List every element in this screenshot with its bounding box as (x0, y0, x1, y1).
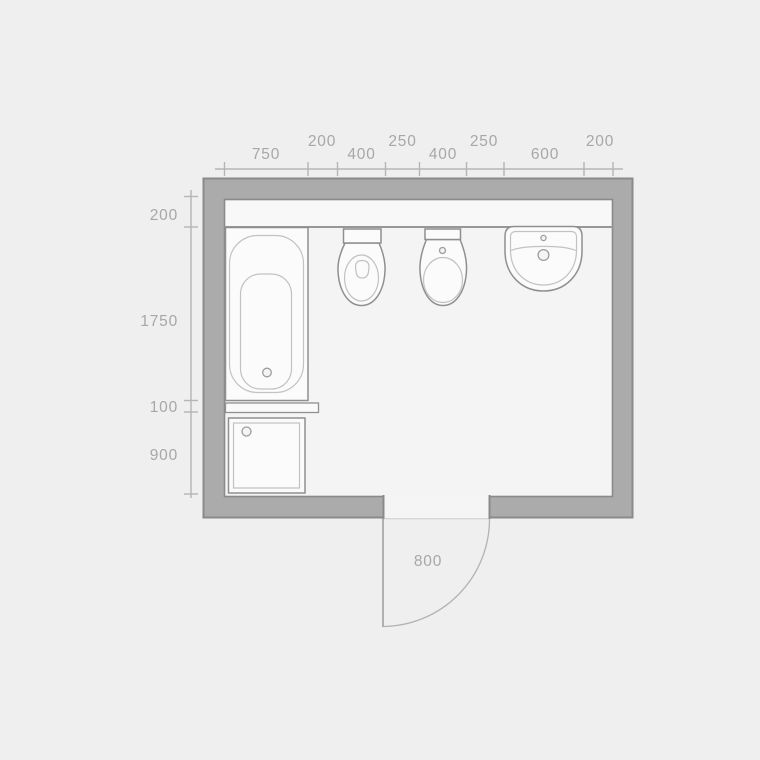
dim-label-200a: 200 (308, 133, 336, 150)
toilet (338, 229, 385, 306)
bidet-faucet-icon (440, 248, 446, 254)
dim-label-250a: 250 (388, 133, 416, 150)
shower-drain-icon (242, 427, 251, 436)
dim-label-left-1750: 1750 (140, 313, 178, 330)
divider-shelf (226, 403, 319, 413)
washbasin (505, 227, 582, 292)
bidet (420, 229, 467, 306)
bathtub-drain-icon (263, 368, 272, 377)
dim-label-400b: 400 (429, 146, 457, 163)
dim-label-400a: 400 (347, 146, 375, 163)
shower-tray-outline (229, 418, 306, 493)
shelf-ledge (225, 201, 614, 228)
door-opening (384, 495, 490, 519)
left-dimension-line: 200 1750 100 900 (140, 190, 198, 498)
dim-label-200b: 200 (586, 133, 614, 150)
floor-plan-drawing: 750 200 400 250 400 250 600 200 200 1750… (0, 0, 760, 760)
shelf-ledge-surface (226, 201, 612, 227)
dim-label-door-800: 800 (414, 553, 442, 570)
top-dimension-line: 750 200 400 250 400 250 600 200 (215, 133, 623, 176)
floor-plan-canvas: 750 200 400 250 400 250 600 200 200 1750… (0, 0, 760, 760)
door-swing-arc (384, 519, 490, 627)
bathtub (226, 228, 309, 401)
dim-label-600: 600 (531, 146, 559, 163)
dim-label-left-900: 900 (150, 447, 178, 464)
dim-label-left-100: 100 (150, 399, 178, 416)
shower-tray (229, 418, 306, 493)
dim-label-left-200: 200 (150, 207, 178, 224)
washbasin-drain-icon (538, 250, 549, 261)
washbasin-faucet-icon (541, 235, 546, 240)
bidet-back (425, 229, 461, 240)
dim-label-750: 750 (252, 146, 280, 163)
dim-label-250b: 250 (470, 133, 498, 150)
toilet-cistern (344, 229, 382, 243)
